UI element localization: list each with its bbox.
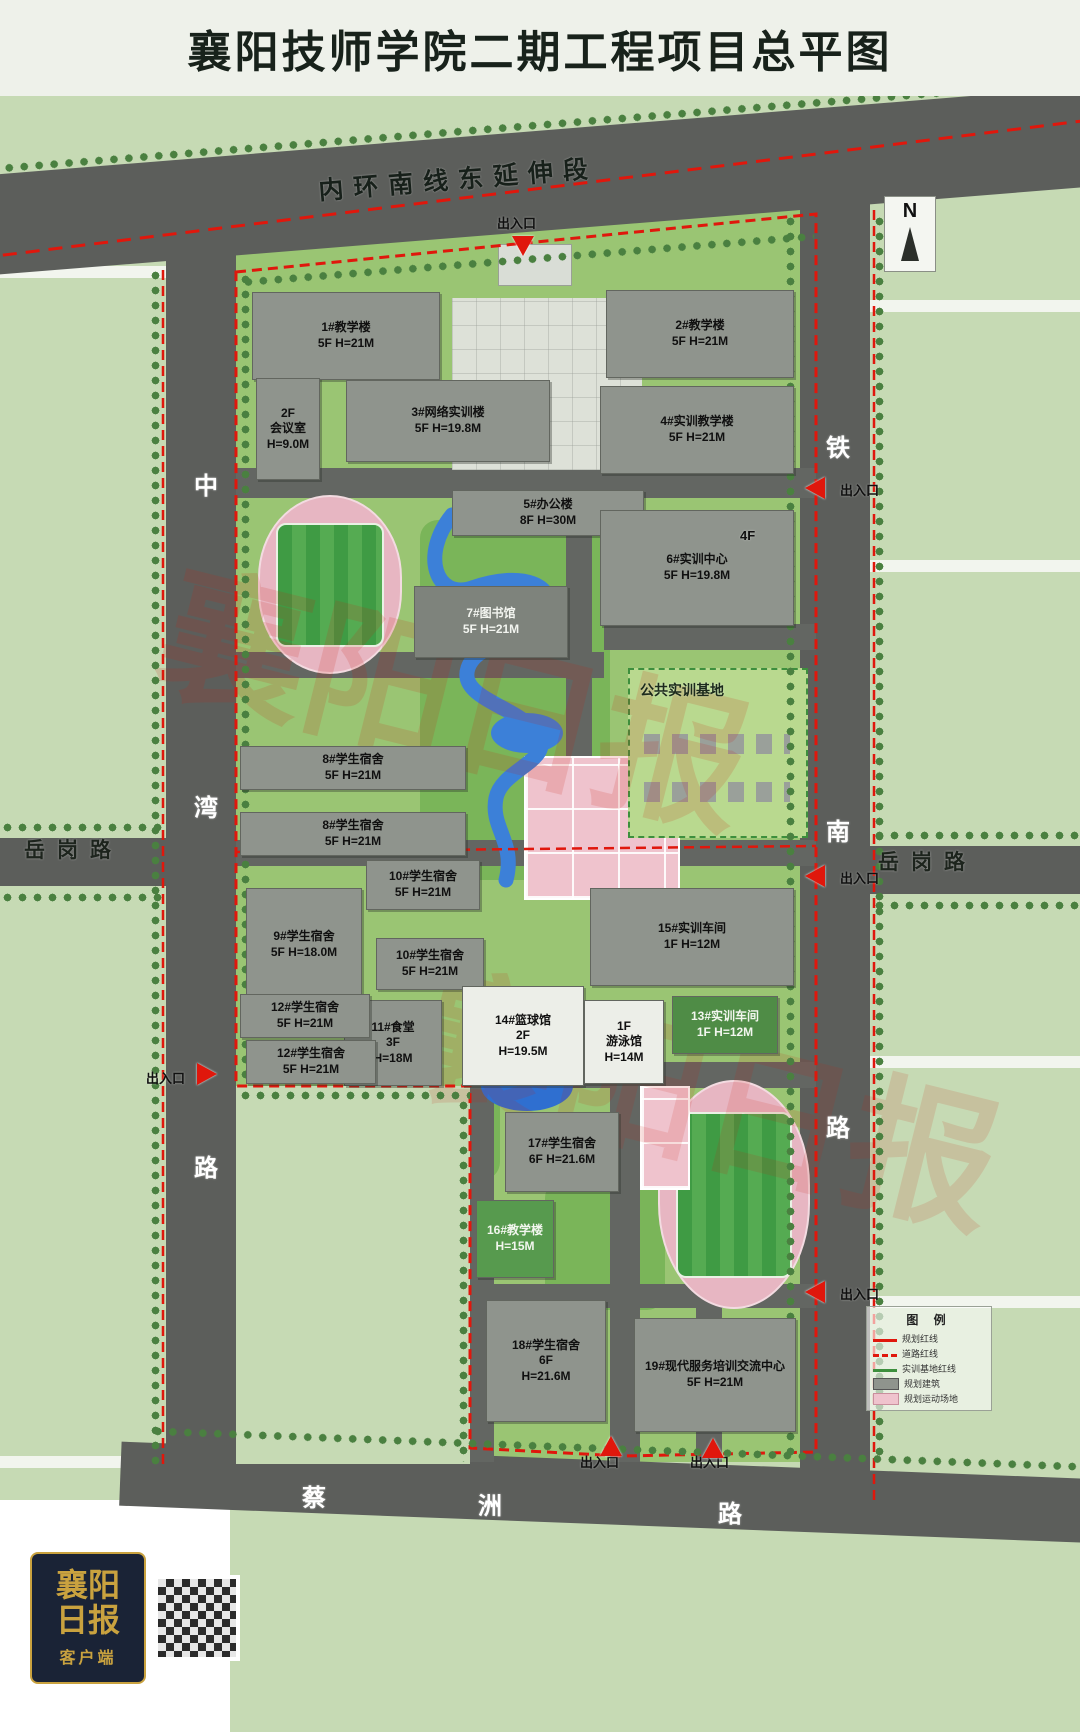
qr-code: [154, 1575, 240, 1661]
building-label: 12#学生宿舍5F H=21M: [277, 1046, 345, 1077]
building-label: 1#教学楼5F H=21M: [318, 320, 374, 351]
entrance-label-east-2: 出入口: [840, 868, 879, 887]
building-18: 18#学生宿舍6FH=21.6M: [486, 1300, 606, 1422]
legend-swatch-gray-box: [873, 1378, 899, 1390]
legend-label: 实训基地红线: [902, 1362, 956, 1375]
building-10b: 10#学生宿舍5F H=21M: [376, 938, 484, 990]
building-2: 2#教学楼5F H=21M: [606, 290, 794, 378]
building-13: 13#实训车间1F H=12M: [672, 996, 778, 1054]
legend-label: 规划建筑: [904, 1377, 940, 1390]
entrance-arrow-icon: [600, 1436, 622, 1456]
legend-swatch-green-line: [873, 1369, 897, 1372]
entrance-label-east-1: 出入口: [840, 480, 879, 499]
building-label: 16#教学楼H=15M: [487, 1223, 543, 1254]
building-label: 15#实训车间1F H=12M: [658, 921, 726, 952]
legend-label: 道路红线: [902, 1347, 938, 1360]
compass: N: [884, 196, 936, 272]
building-label: 11#食堂3FH=18M: [371, 1020, 414, 1067]
legend-item: 道路红线: [873, 1346, 985, 1361]
entrance-label-west: 出入口: [146, 1068, 185, 1087]
building-label: 2#教学楼5F H=21M: [672, 318, 728, 349]
road-name-south-char-3: 路: [718, 1494, 742, 1529]
compass-north-label: N: [903, 200, 917, 223]
building-1: 1#教学楼5F H=21M: [252, 292, 440, 380]
building-8a: 8#学生宿舍5F H=21M: [240, 746, 466, 790]
floor-label-4f: 4F: [740, 528, 755, 543]
legend-item: 规划红线: [873, 1331, 985, 1346]
building-swim: 1F游泳馆H=14M: [584, 1000, 664, 1084]
road-name-west-char-1: 中: [194, 466, 218, 501]
road-name-south-char-2: 洲: [478, 1486, 502, 1521]
building-7: 7#图书馆5F H=21M: [414, 586, 568, 658]
building-15: 15#实训车间1F H=12M: [590, 888, 794, 986]
legend-title: 图 例: [873, 1311, 985, 1328]
building-17: 17#学生宿舍6F H=21.6M: [505, 1112, 619, 1192]
building-label: 18#学生宿舍6FH=21.6M: [512, 1338, 580, 1385]
legend-rows: 规划红线道路红线实训基地红线规划建筑规划运动场地: [873, 1331, 985, 1406]
building-6: 6#实训中心5F H=19.8M: [600, 510, 794, 626]
building-label: 19#现代服务培训交流中心5F H=21M: [645, 1359, 785, 1390]
area-label-training-base: 公共实训基地: [640, 680, 724, 700]
site-plan-page: 襄阳技师学院二期工程项目总平图: [0, 0, 1080, 1732]
building-12a: 12#学生宿舍5F H=21M: [240, 994, 370, 1038]
building-label: 14#篮球馆2FH=19.5M: [495, 1013, 551, 1060]
building-label: 6#实训中心5F H=19.8M: [664, 552, 730, 583]
entrance-arrow-icon: [805, 477, 825, 499]
newspaper-client-label: 客户端: [59, 1644, 116, 1668]
building-8b: 8#学生宿舍5F H=21M: [240, 812, 466, 856]
publisher-logo: 襄阳日报 客户端: [30, 1552, 240, 1684]
page-title: 襄阳技师学院二期工程项目总平图: [188, 16, 893, 80]
entrance-arrow-icon: [512, 236, 534, 256]
entrance-label-east-3: 出入口: [840, 1284, 879, 1303]
building-label: 10#学生宿舍5F H=21M: [396, 948, 464, 979]
legend-swatch-red-line: [873, 1339, 897, 1342]
building-label: 10#学生宿舍5F H=21M: [389, 869, 457, 900]
entrance-arrow-icon: [805, 865, 825, 887]
building-label: 2F会议室H=9.0M: [267, 406, 309, 453]
building-label: 13#实训车间1F H=12M: [691, 1009, 759, 1040]
building-label: 7#图书馆5F H=21M: [463, 606, 519, 637]
building-label: 1F游泳馆H=14M: [604, 1019, 643, 1066]
building-label: 5#办公楼8F H=30M: [520, 497, 576, 528]
entrance-arrow-icon: [197, 1063, 217, 1085]
newspaper-name: 襄阳日报: [50, 1568, 126, 1637]
road-name-yuegang-right: 岳岗路: [878, 846, 977, 876]
building-10a: 10#学生宿舍5F H=21M: [366, 860, 480, 910]
legend-swatch-pink-box: [873, 1393, 899, 1405]
building-16: 16#教学楼H=15M: [476, 1200, 554, 1278]
building-label: 4#实训教学楼5F H=21M: [660, 414, 733, 445]
building-12b: 12#学生宿舍5F H=21M: [246, 1040, 376, 1084]
legend-item: 规划建筑: [873, 1376, 985, 1391]
building-4: 4#实训教学楼5F H=21M: [600, 386, 794, 474]
road-name-west-char-2: 湾: [194, 788, 218, 823]
legend-item: 实训基地红线: [873, 1361, 985, 1376]
building-label: 12#学生宿舍5F H=21M: [271, 1000, 339, 1031]
legend-label: 规划红线: [902, 1332, 938, 1345]
compass-needle-icon: [901, 227, 919, 261]
road-name-south-char-1: 蔡: [302, 1478, 326, 1513]
building-label: 8#学生宿舍5F H=21M: [322, 818, 383, 849]
road-name-east-char-1: 铁: [826, 428, 850, 463]
road-name-yuegang-left: 岳岗路: [24, 834, 123, 864]
road-name-north: 内环南线东延伸段: [317, 149, 599, 207]
building-label: 17#学生宿舍6F H=21.6M: [528, 1136, 596, 1167]
building-label: 8#学生宿舍5F H=21M: [322, 752, 383, 783]
newspaper-seal: 襄阳日报 客户端: [30, 1552, 146, 1684]
road-name-east-char-3: 路: [826, 1108, 850, 1143]
road-name-west-char-3: 路: [194, 1148, 218, 1183]
building-9: 9#学生宿舍5F H=18.0M: [246, 888, 362, 1002]
building-conf: 2F会议室H=9.0M: [256, 378, 320, 480]
building-14: 14#篮球馆2FH=19.5M: [462, 986, 584, 1086]
building-label: 3#网络实训楼5F H=19.8M: [411, 405, 484, 436]
legend-swatch-red-dash: [873, 1354, 897, 1357]
road-name-east-char-2: 南: [826, 812, 850, 847]
legend: 图 例 规划红线道路红线实训基地红线规划建筑规划运动场地: [866, 1306, 992, 1411]
building-3: 3#网络实训楼5F H=19.8M: [346, 380, 550, 462]
building-19: 19#现代服务培训交流中心5F H=21M: [634, 1318, 796, 1432]
building-label: 9#学生宿舍5F H=18.0M: [271, 929, 337, 960]
entrance-arrow-icon: [805, 1281, 825, 1303]
title-bar: 襄阳技师学院二期工程项目总平图: [0, 0, 1080, 96]
legend-label: 规划运动场地: [904, 1392, 958, 1405]
entrance-label-top: 出入口: [497, 213, 536, 232]
legend-item: 规划运动场地: [873, 1391, 985, 1406]
entrance-arrow-icon: [702, 1438, 724, 1458]
